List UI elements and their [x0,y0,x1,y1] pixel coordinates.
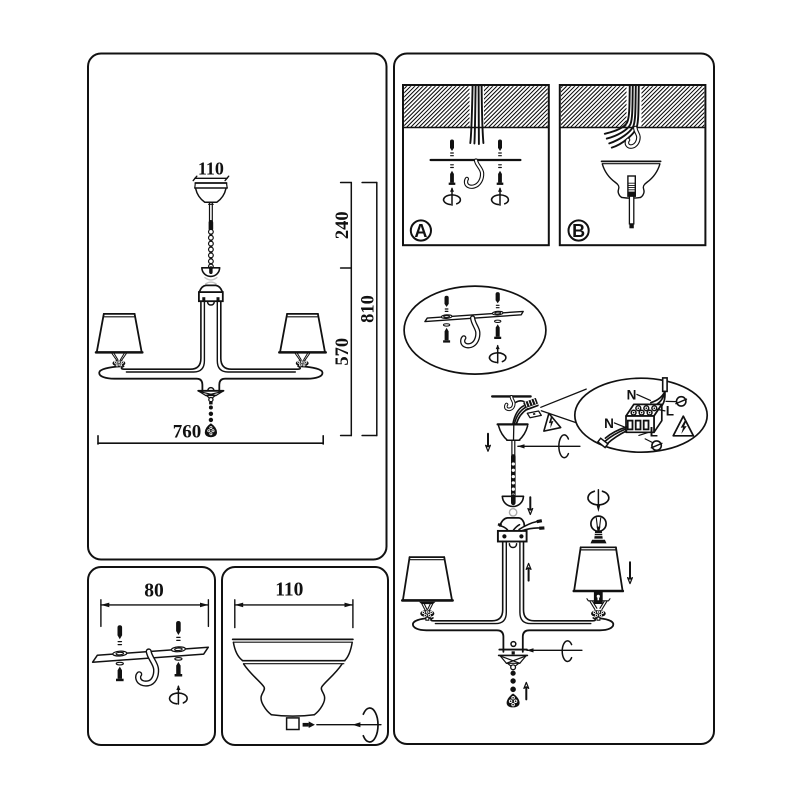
svg-text:570: 570 [333,338,353,366]
svg-text:L: L [650,425,658,440]
svg-text:B: B [572,221,585,241]
svg-text:240: 240 [333,211,353,239]
svg-text:A: A [414,221,427,241]
svg-text:110: 110 [275,580,303,601]
svg-text:N: N [627,388,637,403]
svg-text:L: L [666,403,674,418]
svg-text:760: 760 [173,422,202,443]
svg-text:110: 110 [198,159,224,179]
svg-text:810: 810 [359,295,379,323]
svg-text:N: N [604,416,614,431]
svg-text:80: 80 [144,581,164,602]
